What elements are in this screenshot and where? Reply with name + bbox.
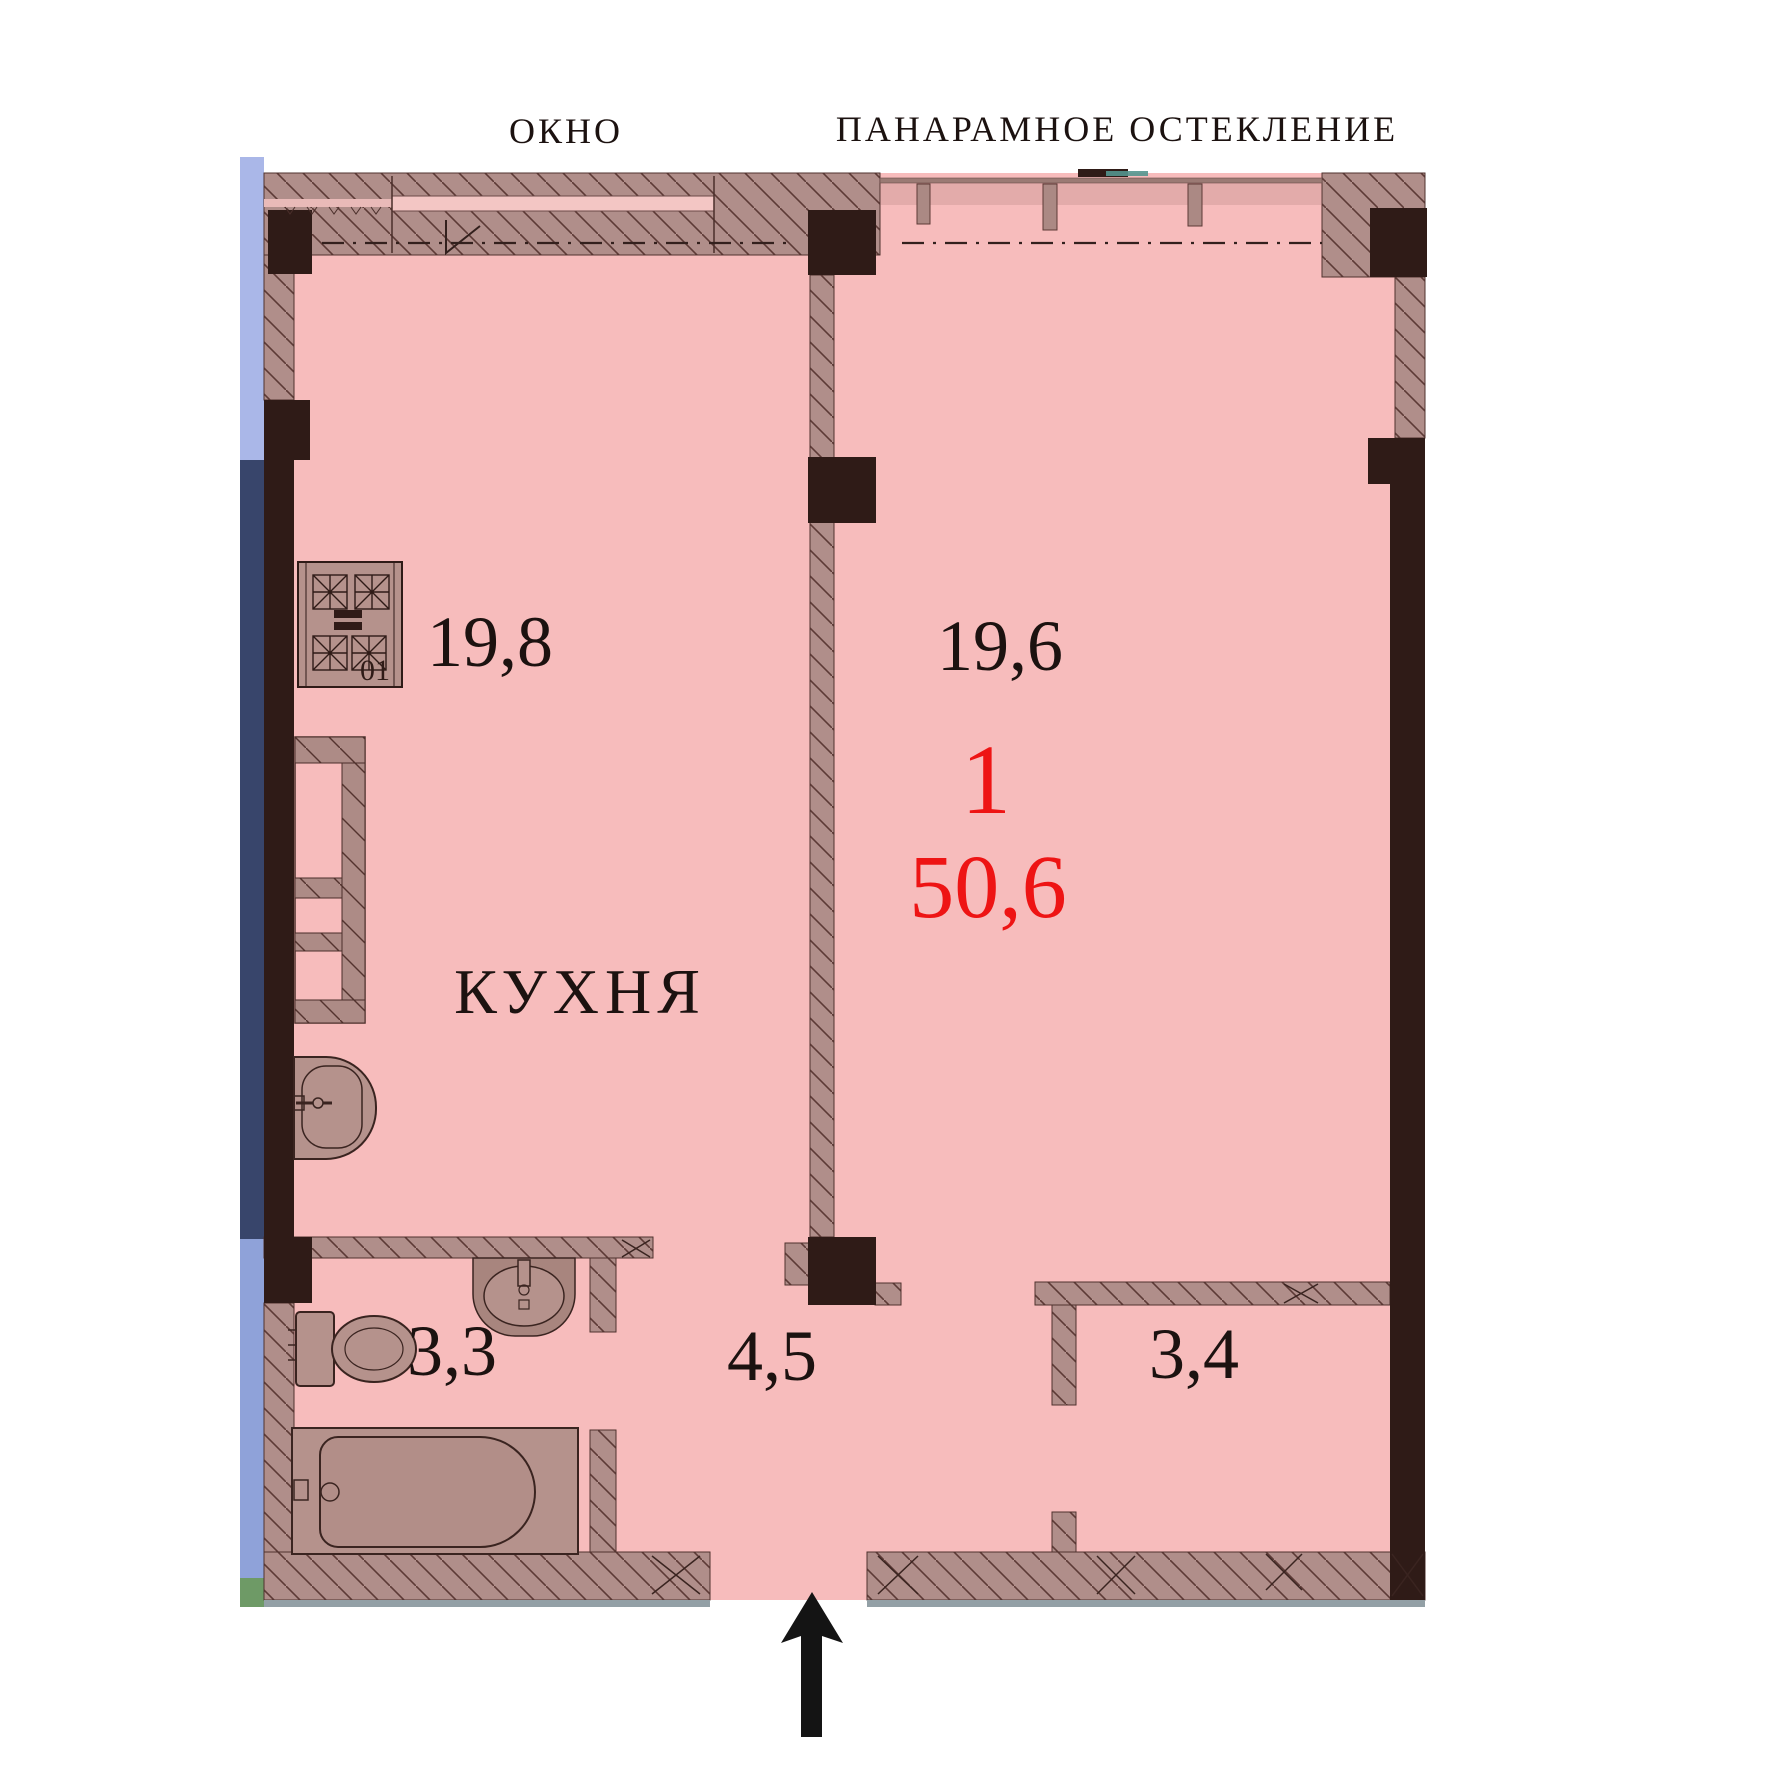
vent-shaft [295,737,365,1023]
closet-area-label: 3,4 [1149,1314,1239,1394]
bathroom-area-label: 3,3 [407,1311,497,1391]
kitchen-area-label: 19,8 [427,602,553,682]
total-area-label: 50,6 [909,838,1067,937]
glazing-mullion [917,184,930,224]
toilet-icon [288,1312,416,1386]
floor-plan-page: 01 [0,0,1780,1780]
glazing-header: ПАНАРАМНОЕ ОСТЕКЛЕНИЕ [836,109,1398,149]
living-area-label: 19,6 [937,606,1063,686]
kitchen-name-label: КУХНЯ [454,956,706,1027]
glazing-mullion [1043,184,1057,230]
window-header: ОКНО [509,111,623,151]
hall-area-label: 4,5 [727,1316,817,1396]
stove-icon: 01 [298,562,402,687]
facade-strip [240,157,264,1607]
stove-mark-label: 01 [360,654,390,687]
floor-plan-svg: 01 [0,0,1780,1780]
bathtub-icon [292,1428,578,1554]
glazing-mullion [1188,184,1202,226]
rooms-count-label: 1 [961,724,1011,835]
